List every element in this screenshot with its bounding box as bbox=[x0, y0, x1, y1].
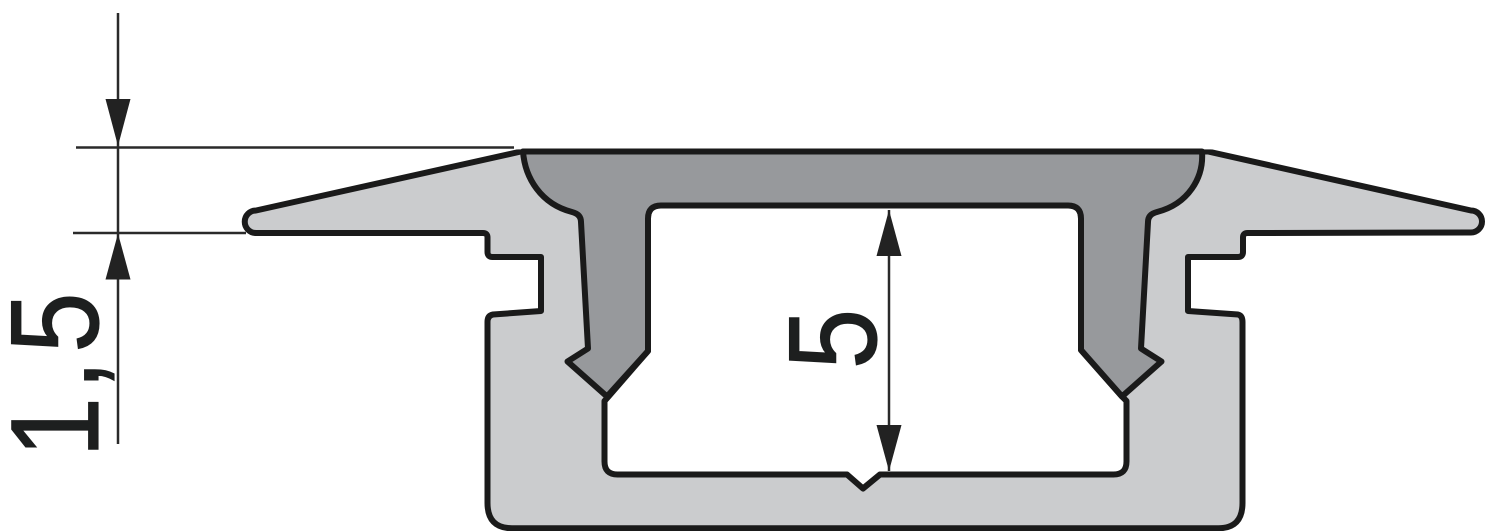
svg-text:1,5: 1,5 bbox=[0, 285, 125, 457]
svg-text:5: 5 bbox=[763, 309, 903, 369]
